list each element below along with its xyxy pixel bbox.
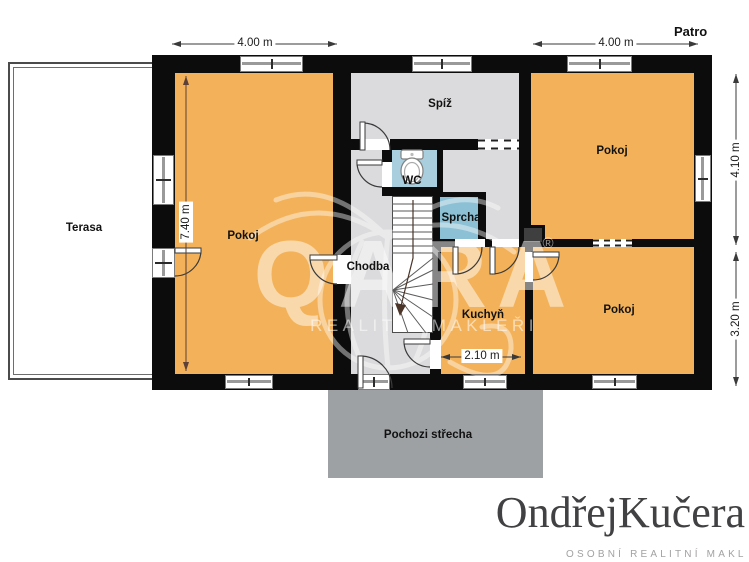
dimension-label: 2.10 m [461, 349, 502, 363]
room-label-kuchyn: Kuchyň [462, 309, 504, 321]
watermark-brand: QARA [254, 221, 577, 328]
watermark-registered-icon: ® [542, 235, 553, 252]
room-label-pokoj-left: Pokoj [227, 230, 258, 242]
dimension-label: 4.00 m [595, 36, 636, 50]
room-label-chodba: Chodba [347, 261, 390, 273]
room-label-spiz: Spíž [428, 98, 452, 110]
agent-last-name: Kučera [618, 488, 745, 537]
dimension-label: 4.10 m [729, 139, 743, 180]
room-label-terasa: Terasa [66, 222, 102, 234]
room-label-sprcha: Sprcha [442, 212, 481, 224]
room-label-pokoj-bottom-right: Pokoj [603, 304, 634, 316]
dimension-label: 3.20 m [729, 298, 743, 339]
room-label-wc: WC [402, 175, 421, 187]
floor-plan-page: QARA ® REALITNÍ MAKLÉŘI [0, 0, 749, 562]
agent-logo: OndřejKučera [496, 487, 745, 538]
agent-logo-tagline: OSOBNÍ REALITNÍ MAKL [566, 549, 747, 560]
plan-vector-overlay: QARA ® REALITNÍ MAKLÉŘI [0, 0, 749, 562]
agent-first-name: Ondřej [496, 488, 618, 537]
room-label-pochozi-strecha: Pochozi střecha [384, 429, 472, 441]
dimension-label: 4.00 m [234, 36, 275, 50]
room-label-pokoj-top-right: Pokoj [596, 145, 627, 157]
dimension-label: 7.40 m [179, 201, 193, 242]
page-title: Patro [674, 24, 707, 39]
